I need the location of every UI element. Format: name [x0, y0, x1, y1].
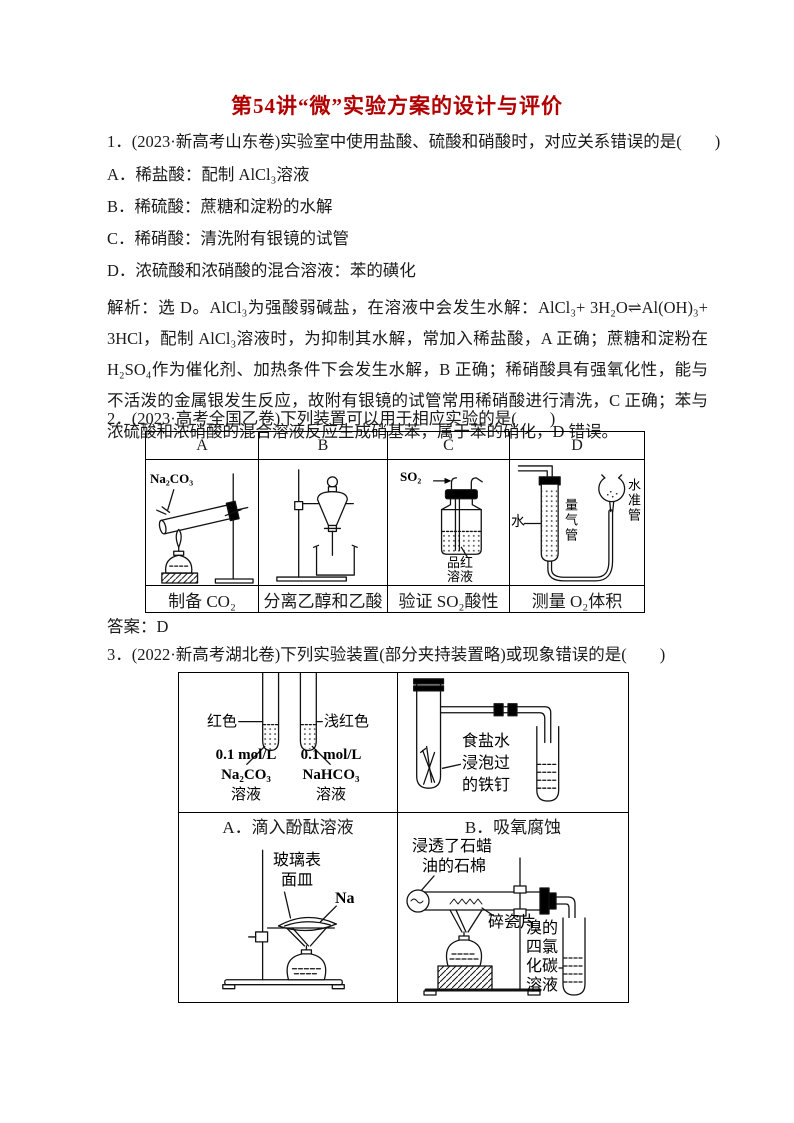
- q3-stem: 3．(2022·新高考湖北卷)下列实验装置(部分夹持装置略)或现象错误的是( ): [107, 644, 708, 666]
- bromine-label-line3: 化碳: [516, 958, 558, 976]
- right-concentration-label: 0.1 mol/L: [291, 747, 371, 764]
- q2-cell-d: 水 量气管 水准管: [510, 460, 644, 586]
- water-label: 水: [511, 515, 525, 531]
- q2-caption-d: 测量 O₂体积: [510, 586, 644, 612]
- right-formula-label: NaHCO₃: [291, 767, 371, 784]
- right-solution-label: 溶液: [291, 787, 371, 804]
- gas-tube-label: 量气管: [562, 498, 577, 552]
- q2-stem: 2．(2023·高考全国乙卷)下列装置可以用于相应实验的是( ): [107, 408, 708, 430]
- watch-glass-label-line2: 面皿: [281, 872, 313, 890]
- q1-option-a: A．稀盐酸：配制 AlCl₃溶液: [107, 164, 708, 186]
- q1-option-c: C．稀硝酸：清洗附有银镜的试管: [107, 228, 708, 250]
- q2-col-header-b: B: [259, 432, 388, 460]
- bromine-label-line4: 溶液: [516, 977, 558, 995]
- sodium-label: Na: [335, 890, 355, 908]
- light-red-color-label: 浅红色: [324, 714, 369, 731]
- red-color-label: 红色: [207, 714, 237, 731]
- sodium-carbonate-label: Na₂CO₃: [150, 472, 193, 487]
- salt-nail-label-line3: 的铁钉: [462, 777, 510, 795]
- document-page: 第54讲“微”实验方案的设计与评价 1．(2023·新高考山东卷)实验室中使用盐…: [0, 0, 794, 1123]
- watch-glass-label-line1: 玻璃表: [273, 852, 321, 870]
- q1-stem: 1．(2023·新高考山东卷)实验室中使用盐酸、硫酸和硝酸时，对应关系错误的是(…: [107, 131, 708, 153]
- q1-option-d: D．浓硫酸和浓硝酸的混合溶液：苯的磺化: [107, 260, 708, 282]
- bromine-label-line1: 溴的: [516, 920, 558, 938]
- q1-option-b: B．稀硫酸：蔗糖和淀粉的水解: [107, 196, 708, 218]
- salt-nail-label-line1: 食盐水: [462, 733, 510, 751]
- q2-caption-c: 验证 SO₂酸性: [388, 586, 510, 612]
- left-concentration-label: 0.1 mol/L: [206, 747, 286, 764]
- q3-caption-b: B．吸氧腐蚀: [398, 813, 628, 838]
- page-title: 第54讲“微”实验方案的设计与评价: [0, 90, 794, 120]
- q2-cell-c: SO₂ 品红 溶液: [388, 460, 510, 586]
- q2-caption-a: 制备 CO₂: [146, 586, 259, 612]
- q2-cell-a: Na₂CO₃: [146, 460, 259, 586]
- q2-answer: 答案：D: [107, 616, 708, 638]
- salt-nail-label-line2: 浸泡过: [462, 755, 510, 773]
- q3-cell-d: 浸透了石蜡 油的石棉 碎瓷片 溴的 四氯 化碳 溶液: [398, 838, 628, 1002]
- fuchsin-label-line2: 溶液: [438, 570, 482, 585]
- q2-cell-b: [259, 460, 388, 586]
- bromine-label-line2: 四氯: [516, 939, 558, 957]
- so2-gas-label: SO₂: [400, 470, 421, 485]
- q2-col-header-c: C: [388, 432, 510, 460]
- q2-col-header-a: A: [146, 432, 259, 460]
- q3-cell-b: 食盐水 浸泡过 的铁钉: [398, 673, 628, 813]
- q2-col-header-d: D: [510, 432, 644, 460]
- paraffin-label-line2: 油的石棉: [422, 858, 486, 876]
- oxygen-corrosion-diagram: [398, 673, 628, 812]
- q2-caption-b: 分离乙醇和乙酸: [259, 586, 388, 612]
- q3-apparatus-table: 红色 浅红色 0.1 mol/L Na₂CO₃ 溶液 0.1 mol/L NaH…: [178, 672, 629, 1003]
- separating-funnel-diagram: [259, 460, 387, 585]
- q3-cell-c: 玻璃表 面皿 Na: [179, 838, 398, 1002]
- level-tube-label: 水准管: [625, 478, 640, 534]
- left-solution-label: 溶液: [206, 787, 286, 804]
- q3-cell-a: 红色 浅红色 0.1 mol/L Na₂CO₃ 溶液 0.1 mol/L NaH…: [179, 673, 398, 813]
- paraffin-label-line1: 浸透了石蜡: [412, 838, 492, 856]
- q3-caption-a: A．滴入酚酞溶液: [179, 813, 398, 838]
- left-formula-label: Na₂CO₃: [206, 767, 286, 784]
- q2-apparatus-table: A B C D: [145, 431, 645, 613]
